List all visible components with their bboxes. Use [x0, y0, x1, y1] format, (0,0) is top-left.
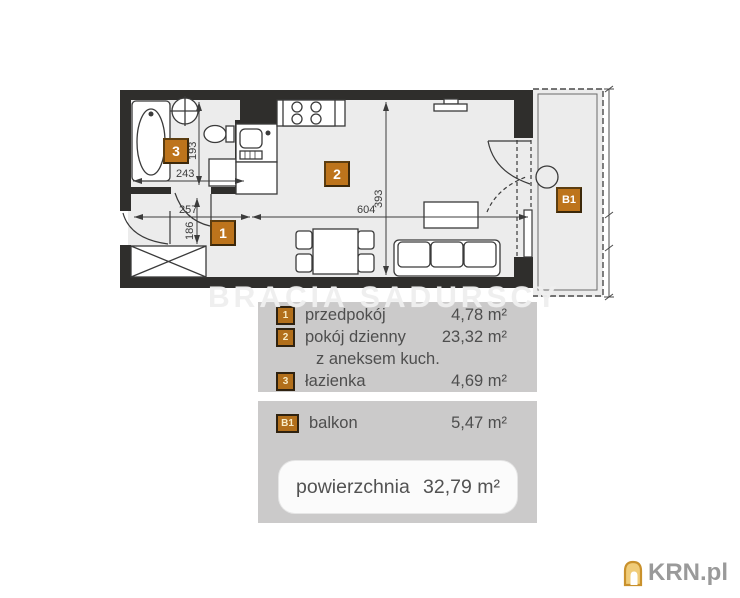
room-label-bath: 3 [163, 138, 189, 164]
legend-room-area: 5,47 m² [451, 414, 507, 433]
total-area-value: 32,79 m² [423, 476, 500, 499]
kitchen-sink-icon [236, 124, 277, 162]
washing-machine-icon [209, 159, 236, 186]
legend-room-area: 4,69 m² [451, 372, 507, 391]
balcony-table-icon [536, 166, 558, 188]
legend-marker-3: 3 [276, 372, 295, 391]
room-label-living: 2 [324, 161, 350, 187]
logo-text: KRN.pl [648, 559, 728, 587]
legend-row-living-cont: z aneksem kuch. [258, 348, 537, 370]
room-label-balcony: B1 [556, 187, 582, 213]
dim-bath-width: 243 [176, 168, 194, 180]
house-icon [621, 558, 645, 588]
total-area-box: powierzchnia 32,79 m² [279, 461, 517, 513]
kitchen-cabinet-icon [236, 162, 277, 194]
legend-row-living: 2 pokój dzienny 23,32 m² [258, 326, 537, 348]
legend-marker-1: 1 [276, 306, 295, 325]
sofa-icon [394, 240, 500, 276]
legend-marker-b1: B1 [276, 414, 299, 433]
total-area-label: powierzchnia [296, 476, 410, 499]
legend-room-name: balkon [309, 414, 358, 433]
legend-room-name: przedpokój [305, 306, 386, 325]
legend-rooms-panel: 1 przedpokój 4,78 m² 2 pokój dzienny 23,… [258, 302, 537, 392]
dim-hall-depth: 186 [184, 222, 196, 240]
legend-row-balcony: B1 balkon 5,47 m² [258, 412, 537, 434]
legend-room-area: 4,78 m² [451, 306, 507, 325]
balcony-dimension-line [604, 86, 614, 300]
room-label-hall: 1 [210, 220, 236, 246]
legend-room-name: pokój dzienny [305, 328, 406, 347]
stove-icon [277, 100, 345, 126]
krn-logo: KRN.pl [621, 558, 728, 588]
legend-row-hall: 1 przedpokój 4,78 m² [258, 304, 537, 326]
legend-room-name: łazienka [305, 372, 366, 391]
dim-hall-width: 257 [179, 204, 197, 216]
legend-row-bath: 3 łazienka 4,69 m² [258, 370, 537, 392]
legend-room-name-line2: z aneksem kuch. [316, 350, 440, 369]
wardrobe-icon [131, 246, 206, 277]
legend-balcony-panel: B1 balkon 5,47 m² powierzchnia 32,79 m² [258, 401, 537, 523]
legend-marker-2: 2 [276, 328, 295, 347]
dim-living-depth: 393 [373, 190, 385, 208]
coffee-table-icon [424, 202, 478, 228]
legend-room-area: 23,32 m² [442, 328, 507, 347]
floorplan-page: 243 193 257 604 186 393 1 2 3 B1 1 przed… [0, 0, 740, 598]
toilet-icon [204, 126, 234, 143]
